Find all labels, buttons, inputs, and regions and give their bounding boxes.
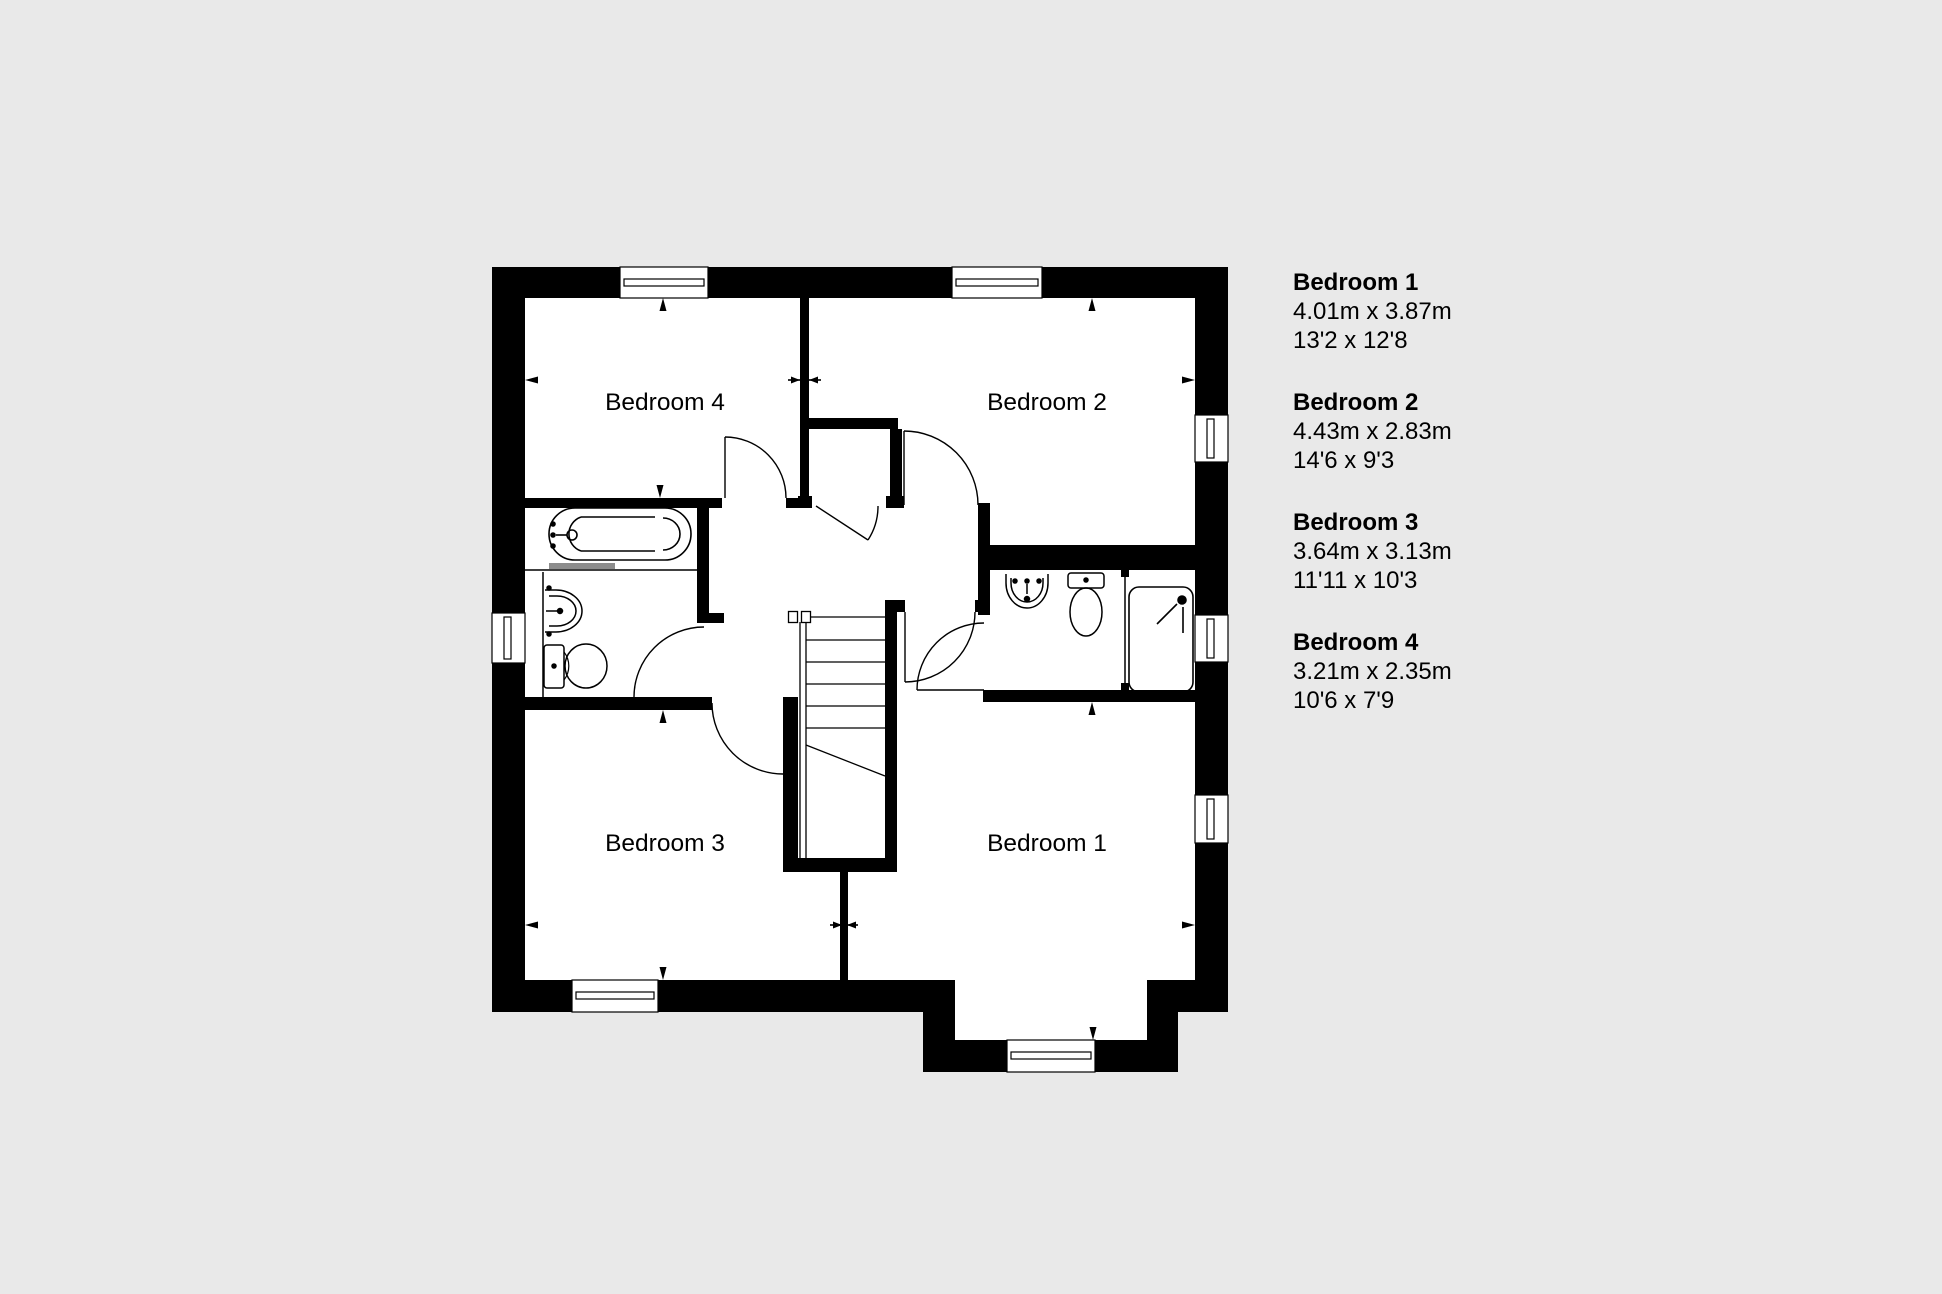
legend-room-name: Bedroom 2 <box>1293 388 1452 417</box>
legend-entry-bedroom1: Bedroom 1 4.01m x 3.87m 13'2 x 12'8 <box>1293 268 1452 355</box>
legend-room-name: Bedroom 3 <box>1293 508 1452 537</box>
room-label-bedroom4: Bedroom 4 <box>605 389 725 416</box>
legend-entry-bedroom3: Bedroom 3 3.64m x 3.13m 11'11 x 10'3 <box>1293 508 1452 595</box>
room-dimensions-legend: Bedroom 1 4.01m x 3.87m 13'2 x 12'8 Bedr… <box>1293 268 1452 748</box>
shower-screen-stub <box>1121 570 1129 577</box>
legend-imperial-size: 13'2 x 12'8 <box>1293 326 1452 355</box>
legend-imperial-size: 10'6 x 7'9 <box>1293 686 1452 715</box>
legend-entry-bedroom4: Bedroom 4 3.21m x 2.35m 10'6 x 7'9 <box>1293 628 1452 715</box>
floor-area <box>492 267 1228 1072</box>
room-label-bedroom3: Bedroom 3 <box>605 830 725 857</box>
legend-metric-size: 4.01m x 3.87m <box>1293 297 1452 326</box>
room-label-bedroom1: Bedroom 1 <box>987 830 1107 857</box>
legend-metric-size: 3.21m x 2.35m <box>1293 657 1452 686</box>
floorplan-page: Bedroom 4 Bedroom 2 Bedroom 3 Bedroom 1 … <box>0 0 1942 1294</box>
legend-room-name: Bedroom 4 <box>1293 628 1452 657</box>
legend-metric-size: 4.43m x 2.83m <box>1293 417 1452 446</box>
legend-imperial-size: 11'11 x 10'3 <box>1293 566 1452 595</box>
floor-plan: Bedroom 4 Bedroom 2 Bedroom 3 Bedroom 1 <box>480 255 1240 1085</box>
legend-entry-bedroom2: Bedroom 2 4.43m x 2.83m 14'6 x 9'3 <box>1293 388 1452 475</box>
shower-screen-stub <box>1121 683 1129 690</box>
legend-metric-size: 3.64m x 3.13m <box>1293 537 1452 566</box>
bath-screen <box>549 563 615 569</box>
room-label-bedroom2: Bedroom 2 <box>987 389 1107 416</box>
legend-imperial-size: 14'6 x 9'3 <box>1293 446 1452 475</box>
legend-room-name: Bedroom 1 <box>1293 268 1452 297</box>
